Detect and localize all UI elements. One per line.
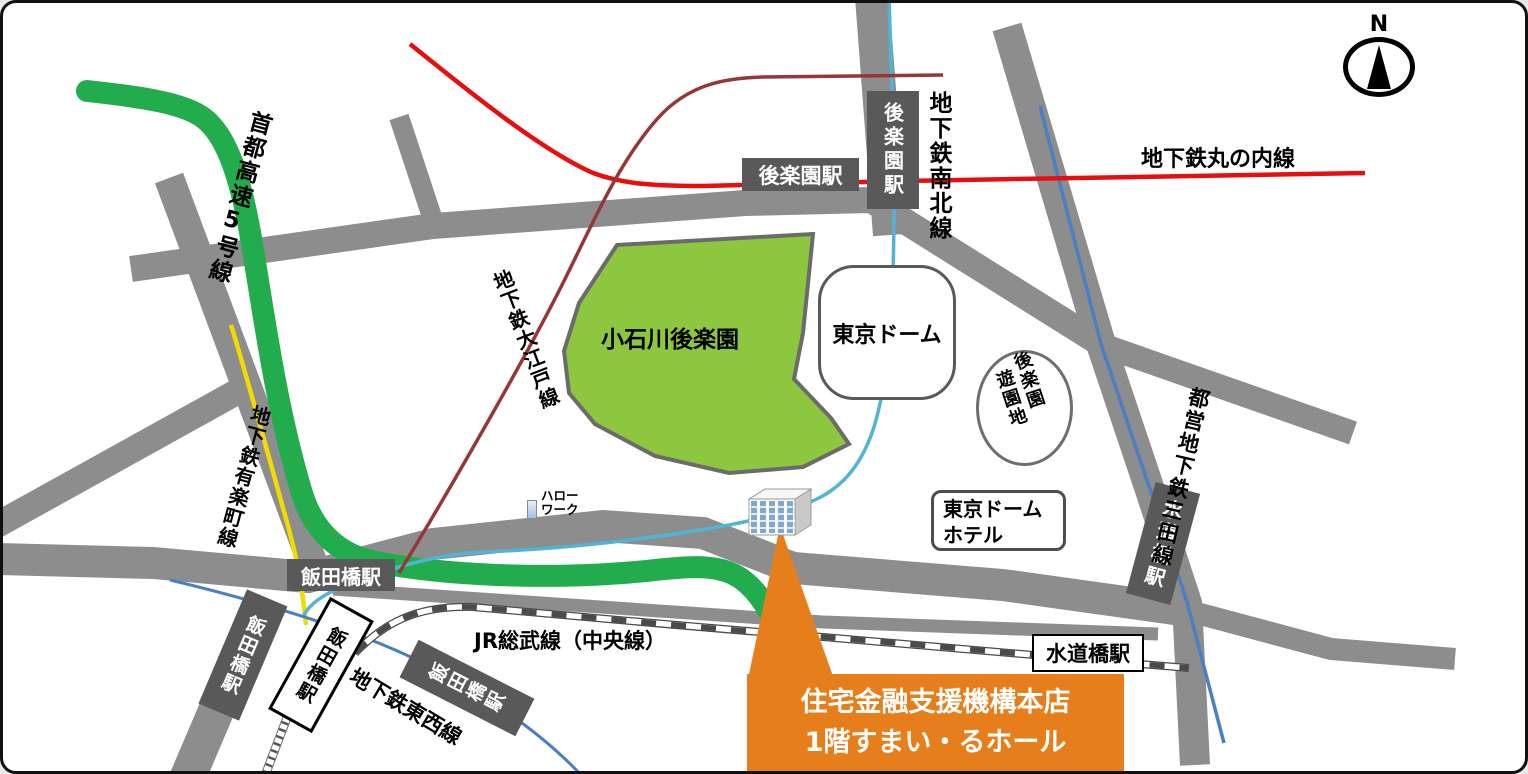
- road-north-stub: [399, 117, 436, 229]
- destination-line1: 住宅金融支援機構本店: [747, 683, 1124, 722]
- tokyo-dome-hotel-box: 東京ドーム ホテル: [931, 490, 1066, 551]
- hellowork-line1: ハロー: [541, 489, 579, 503]
- tokyo-dome-label: 東京ドーム: [832, 317, 941, 349]
- amusement-park-shape: 後楽園 遊園地: [976, 350, 1073, 466]
- label-marunouchi-line: 地下鉄丸の内線: [1141, 141, 1295, 173]
- destination-line2: 1階すまい・るホール: [747, 723, 1124, 762]
- road-main-east: [1189, 611, 1455, 659]
- hellowork-line2: ワーク: [541, 503, 579, 517]
- hellowork-label: ハロー ワーク: [541, 489, 579, 518]
- destination-callout: 住宅金融支援機構本店 1階すまい・るホール: [747, 674, 1124, 771]
- label-namboku-line: 地下鉄南北線: [921, 91, 955, 241]
- road-west-branch: [3, 383, 253, 525]
- compass-ring-icon: [1343, 37, 1415, 97]
- station-korakuen-horizontal: 後楽園駅: [742, 158, 859, 191]
- station-iidabashi-main: 飯田橋駅: [287, 559, 395, 591]
- label-koishikawa-park: 小石川後楽園: [601, 320, 739, 354]
- compass-north-label: N: [1339, 13, 1419, 37]
- label-jr-sobu-line: JR総武線（中央線）: [474, 625, 666, 655]
- hotel-label-line2: ホテル: [943, 522, 1063, 548]
- amusement-park-label: 後楽園 遊園地: [986, 349, 1063, 468]
- station-korakuen-vertical: 後楽園駅: [867, 91, 919, 209]
- hotel-label-line1: 東京ドーム: [943, 496, 1063, 522]
- compass: N: [1339, 13, 1419, 97]
- station-suidobashi-jr: 水道橋駅: [1032, 634, 1144, 672]
- agency-building-icon: [745, 485, 819, 543]
- tokyo-dome-shape: 東京ドーム: [818, 265, 956, 400]
- compass-needle-icon: [1367, 45, 1391, 89]
- jr-tail: [266, 715, 288, 771]
- hellowork-building-icon: [527, 500, 537, 519]
- route-map: 東京ドーム 後楽園 遊園地 東京ドーム ホテル ハロー ワーク: [0, 0, 1528, 774]
